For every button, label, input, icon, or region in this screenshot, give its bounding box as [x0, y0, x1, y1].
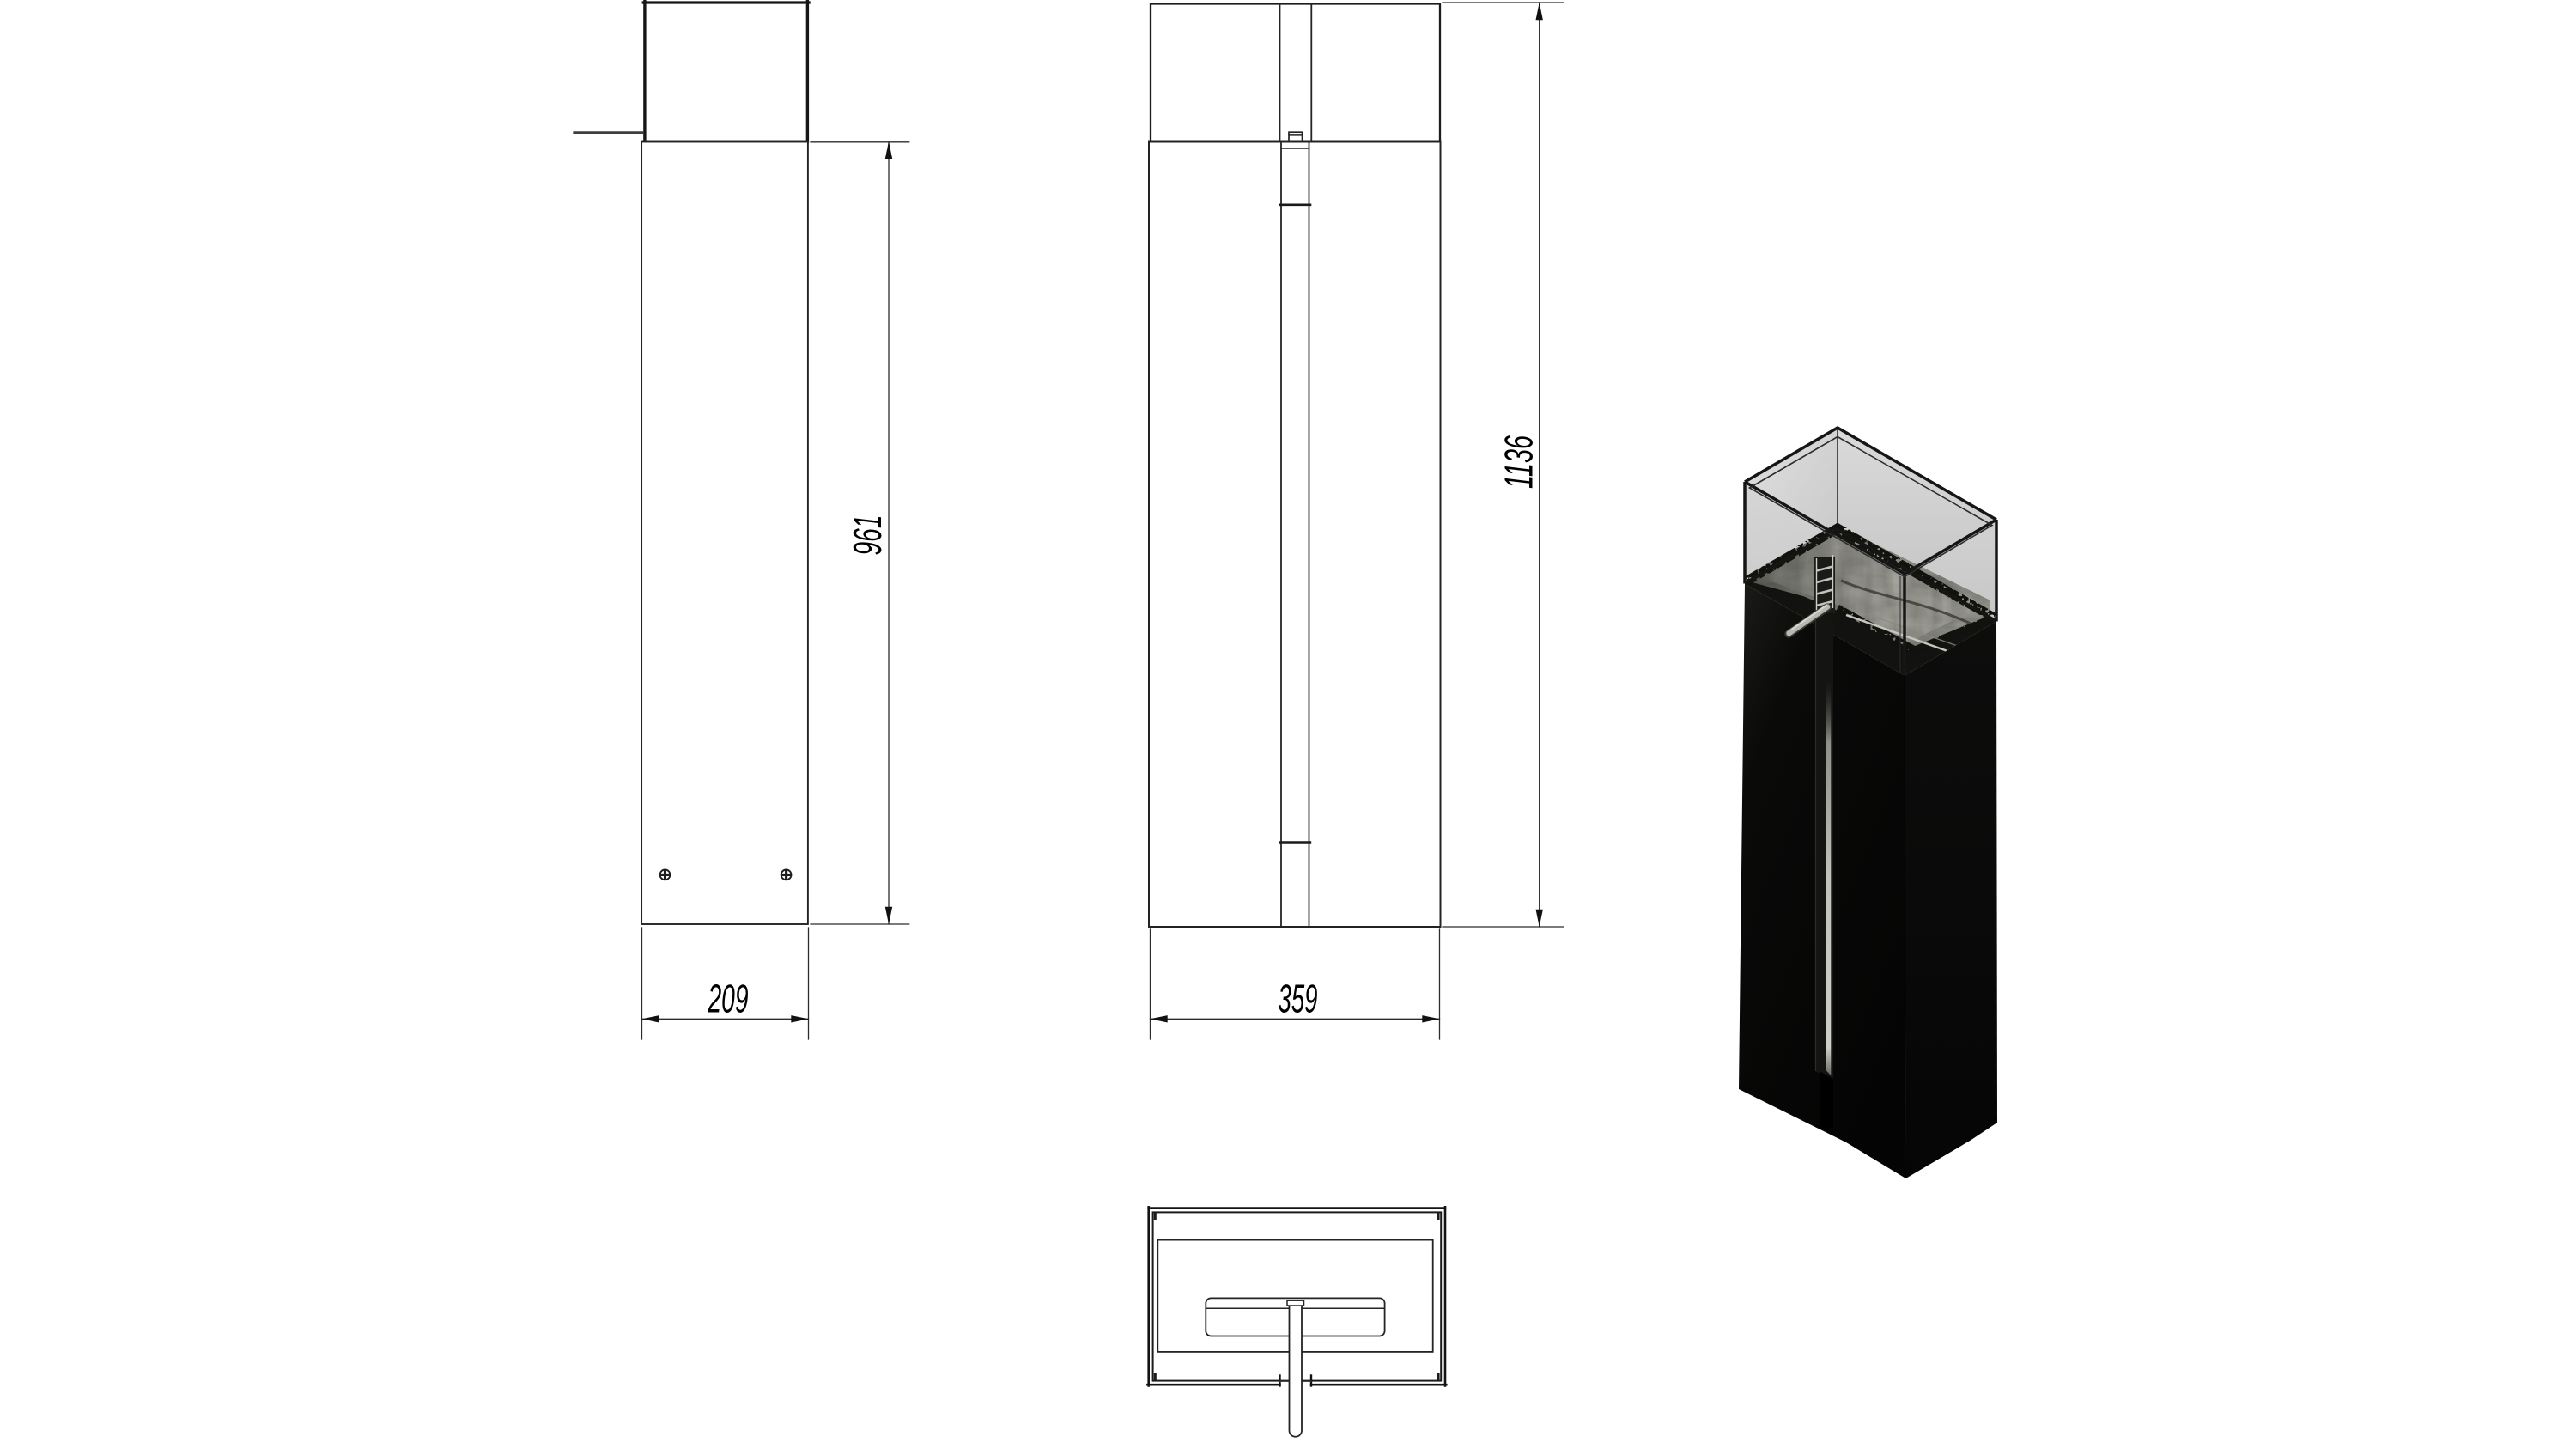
svg-text:209: 209	[708, 977, 749, 1021]
svg-text:359: 359	[1279, 977, 1318, 1021]
svg-text:961: 961	[845, 515, 890, 556]
svg-text:1136: 1136	[1497, 435, 1541, 489]
